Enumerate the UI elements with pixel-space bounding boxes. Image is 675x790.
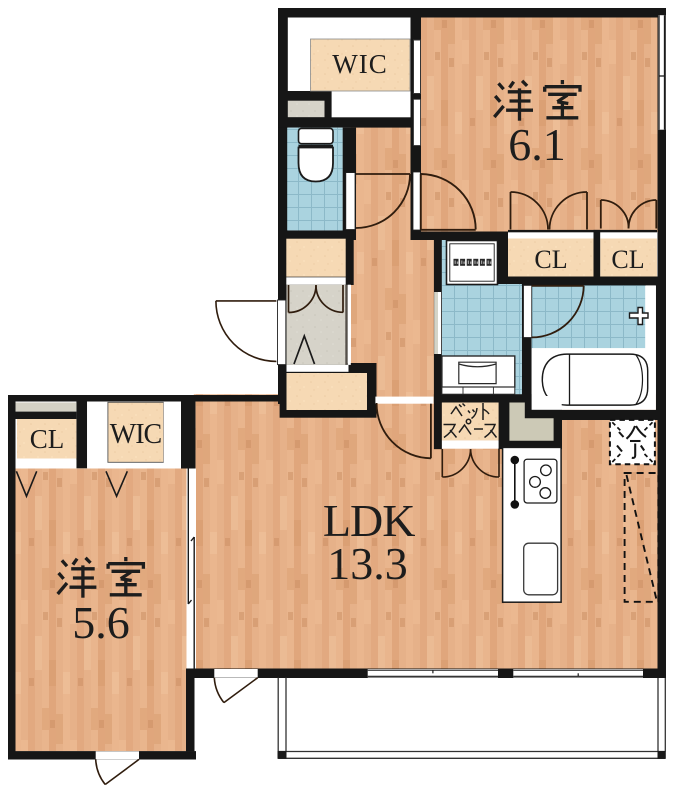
svg-text:WIC: WIC xyxy=(110,419,162,450)
svg-text:6.1: 6.1 xyxy=(508,119,566,170)
svg-text:13.3: 13.3 xyxy=(327,538,408,589)
svg-text:WIC: WIC xyxy=(332,49,387,79)
svg-text:CL: CL xyxy=(30,424,65,454)
svg-text:CL: CL xyxy=(534,245,567,274)
svg-text:5.6: 5.6 xyxy=(72,597,130,648)
svg-text:CL: CL xyxy=(611,245,644,274)
